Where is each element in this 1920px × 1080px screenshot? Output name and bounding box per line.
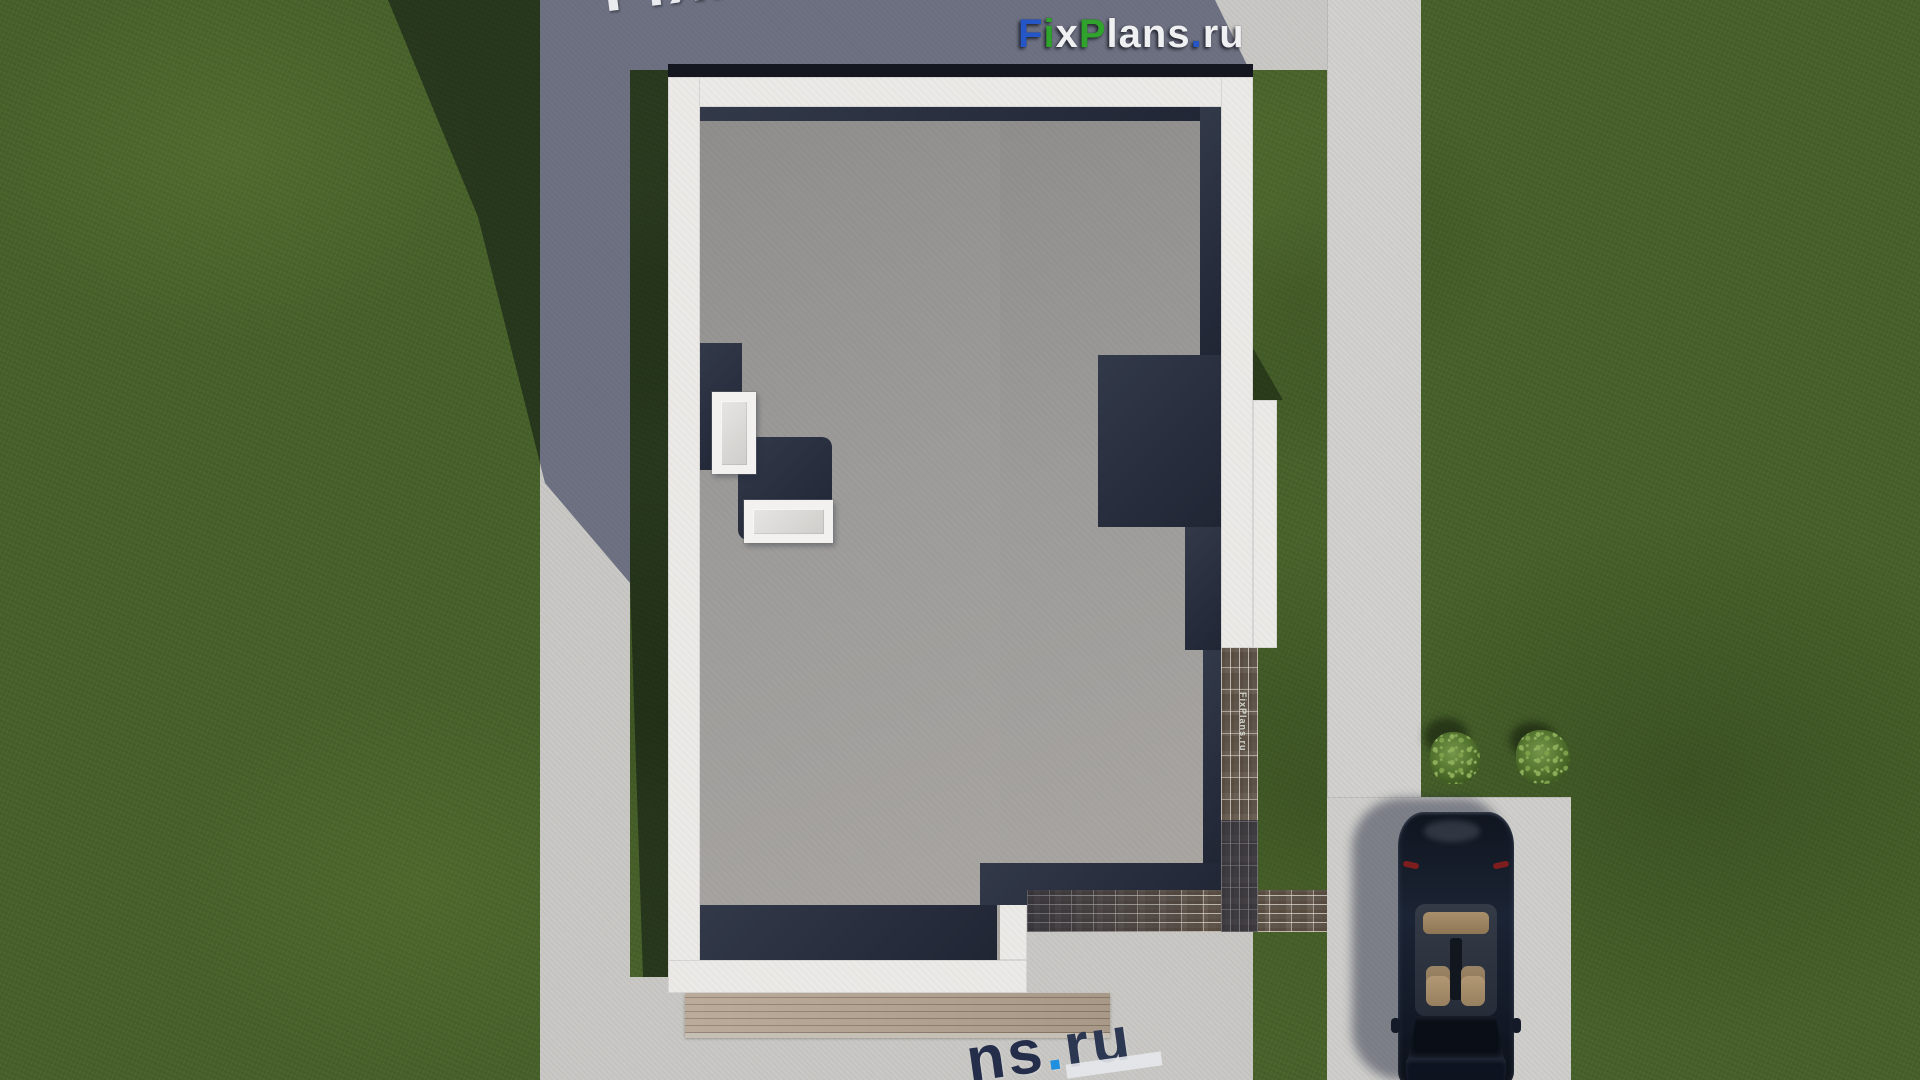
fixplans-logo: FixPlans.ru: [1018, 12, 1245, 57]
logo-letter: u: [1219, 12, 1244, 56]
car-front-seat-left: [1426, 966, 1450, 1006]
watermark-letter: F: [598, 0, 650, 25]
logo-letter: i: [1043, 12, 1055, 56]
parapet-bottom: [668, 960, 1027, 993]
logo-letter: s: [1167, 12, 1190, 56]
brick-path-bottom: [1027, 890, 1327, 932]
wall-base-shadow: [668, 64, 1253, 77]
logo-letter: n: [1142, 12, 1167, 56]
skylight-2-dome: [753, 509, 824, 534]
parapet-right-bump: [1253, 400, 1277, 648]
brick-path-side-shadow: [1221, 820, 1258, 932]
car-front-seat-right: [1461, 966, 1485, 1006]
parapet-left: [668, 77, 700, 993]
logo-letter: l: [1107, 12, 1119, 56]
skylight-1-dome: [721, 401, 747, 465]
bush-2: [1516, 730, 1570, 784]
brick-path-side: [1221, 648, 1258, 932]
car: [1398, 812, 1514, 1080]
parapet-top: [668, 77, 1253, 107]
logo-letter: .: [1191, 12, 1203, 56]
car-mirror-right: [1512, 1018, 1521, 1033]
logo-letter: F: [1018, 12, 1043, 56]
watermark-brick-path: FixPlans.ru: [1238, 692, 1248, 752]
skylight-1: [712, 392, 756, 474]
car-rear-seat: [1423, 912, 1489, 934]
brick-path-bottom-shadow: [1027, 890, 1218, 932]
roof-shadow-top-band: [700, 107, 1221, 121]
logo-letter: r: [1203, 12, 1220, 56]
car-mirror-left: [1391, 1018, 1400, 1033]
roof-shadow-right-band-3: [1203, 650, 1221, 863]
roof-shadow-right-band-2: [1185, 527, 1221, 650]
car-windshield: [1408, 1016, 1504, 1058]
roof-shadow-right-band: [1200, 107, 1221, 355]
logo-letter: x: [1056, 12, 1079, 56]
car-hood: [1406, 1058, 1506, 1080]
roof-lower-block-right: [1098, 355, 1221, 527]
car-cabin: [1415, 904, 1497, 1016]
logo-letter: a: [1119, 12, 1142, 56]
bush-1: [1430, 732, 1480, 784]
logo-letter: P: [1079, 12, 1107, 56]
parapet-right: [1221, 77, 1253, 648]
skylight-2: [744, 500, 833, 543]
site-plan-render: FixPlans.ru FixPlans.ru ns.ru FixPlans.r…: [0, 0, 1920, 1080]
car-rear-highlight: [1424, 820, 1480, 842]
roof-shadow-bottom-band: [700, 905, 997, 960]
